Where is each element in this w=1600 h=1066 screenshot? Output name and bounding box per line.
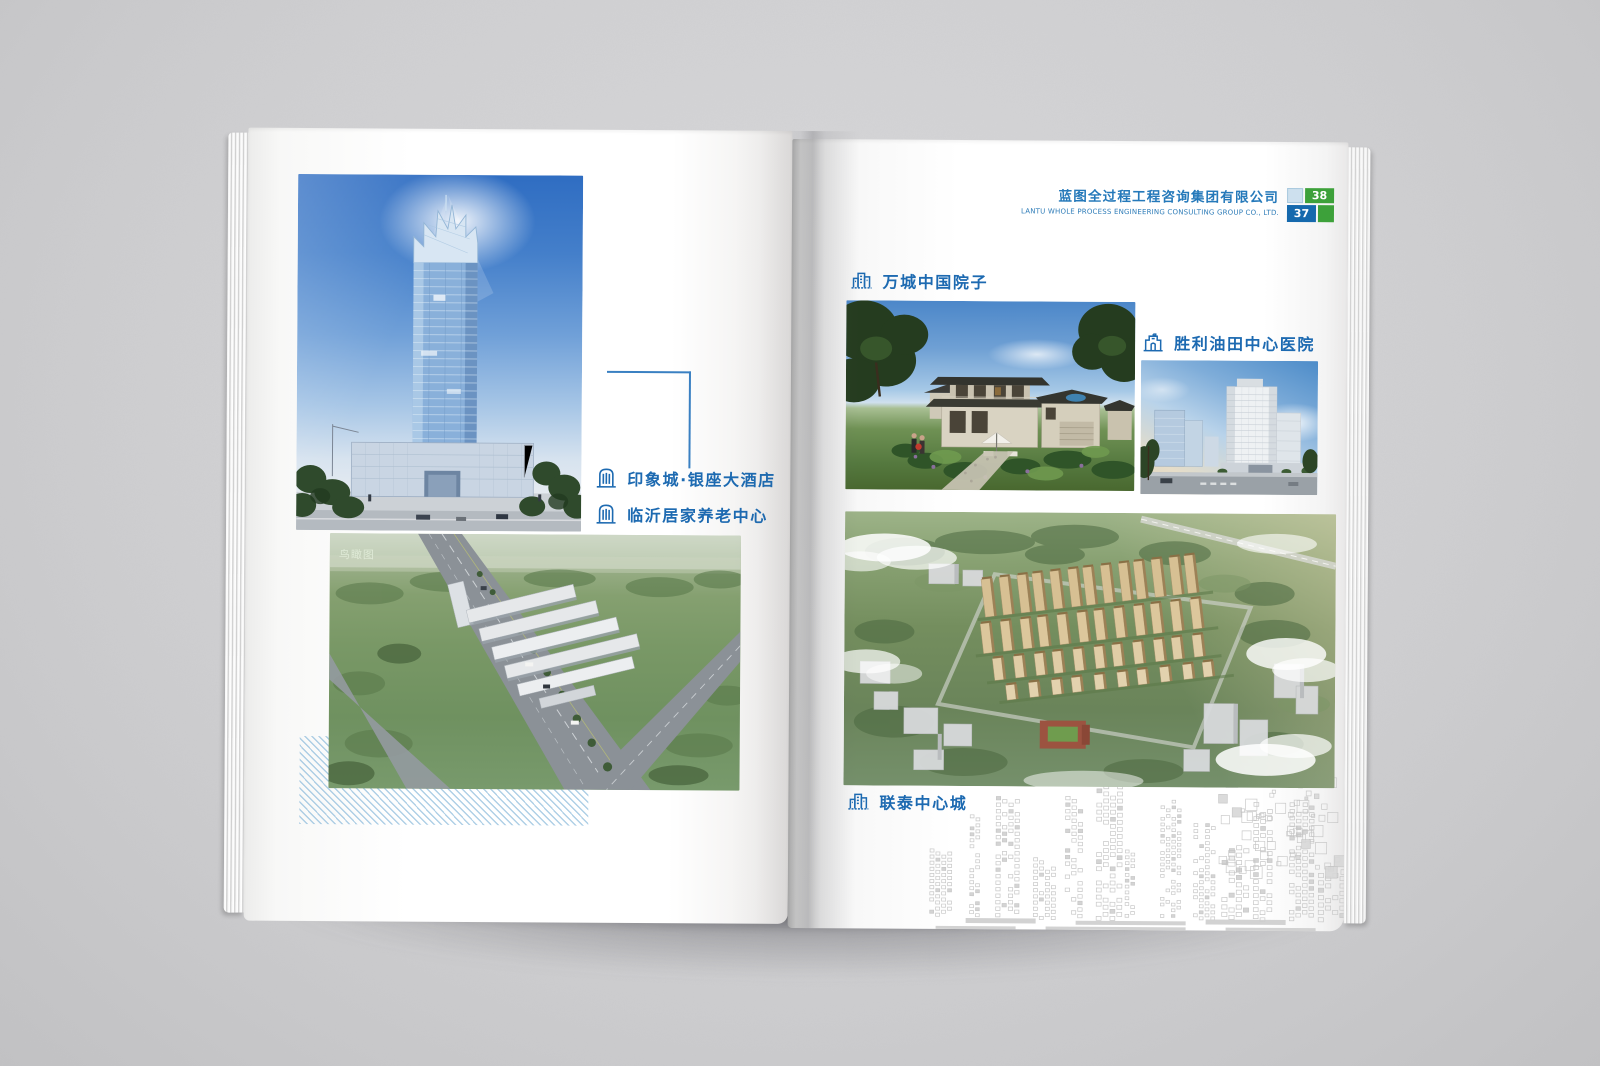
arched-building-icon xyxy=(594,466,618,490)
company-name-cn: 蓝图全过程工程咨询集团有限公司 xyxy=(1021,184,1279,206)
page-number-38: 38 xyxy=(1305,188,1334,203)
project-label-text: 万城中国院子 xyxy=(882,269,988,294)
city-buildings-icon xyxy=(849,268,873,292)
open-brochure: 印象城·银座大酒店 临沂居家养老中心 xyxy=(225,119,1370,952)
skyscraper-render-photo xyxy=(296,174,583,532)
hospital-render-photo xyxy=(1140,360,1318,495)
project-label-text: 胜利油田中心医院 xyxy=(1174,330,1315,355)
courtyard-villa-photo xyxy=(845,300,1135,491)
aerial-render-photo-left: 鸟瞰图 xyxy=(328,533,741,791)
page-number-badge: 38 37 xyxy=(1287,188,1334,222)
hospital-building-icon xyxy=(1141,330,1165,354)
aerial-caption: 鸟瞰图 xyxy=(339,546,375,562)
company-name-block: 蓝图全过程工程咨询集团有限公司 LANTU WHOLE PROCESS ENGI… xyxy=(1021,184,1279,217)
left-page: 印象城·银座大酒店 临沂居家养老中心 xyxy=(244,128,793,924)
aerial-render-photo-right xyxy=(843,511,1336,788)
page-number-37: 37 xyxy=(1287,205,1316,222)
project-label-text: 临沂居家养老中心 xyxy=(627,502,768,527)
arched-building-icon xyxy=(594,502,618,526)
badge-cell-decor xyxy=(1318,205,1334,222)
corner-bracket-line xyxy=(606,371,691,469)
city-buildings-icon xyxy=(846,789,870,813)
page-header: 蓝图全过程工程咨询集团有限公司 LANTU WHOLE PROCESS ENGI… xyxy=(1021,184,1334,222)
right-page: 蓝图全过程工程咨询集团有限公司 LANTU WHOLE PROCESS ENGI… xyxy=(788,139,1349,931)
project-label-wancheng: 万城中国院子 xyxy=(849,268,988,293)
project-label-text: 联泰中心城 xyxy=(879,790,967,815)
project-label-shengli-hospital: 胜利油田中心医院 xyxy=(1141,330,1315,355)
project-label-yinzuo-hotel: 印象城·银座大酒店 xyxy=(594,466,776,491)
brochure-mockup-scene: 印象城·银座大酒店 临沂居家养老中心 xyxy=(0,0,1600,1066)
project-label-linyi-care-center: 临沂居家养老中心 xyxy=(594,502,768,527)
project-label-text: 印象城·银座大酒店 xyxy=(627,466,776,491)
project-label-liantai: 联泰中心城 xyxy=(846,789,967,814)
badge-cell-decor xyxy=(1287,188,1303,203)
company-name-en: LANTU WHOLE PROCESS ENGINEERING CONSULTI… xyxy=(1021,207,1279,217)
deco-cityscape-lineart xyxy=(925,768,1346,932)
school-block xyxy=(1040,720,1090,748)
